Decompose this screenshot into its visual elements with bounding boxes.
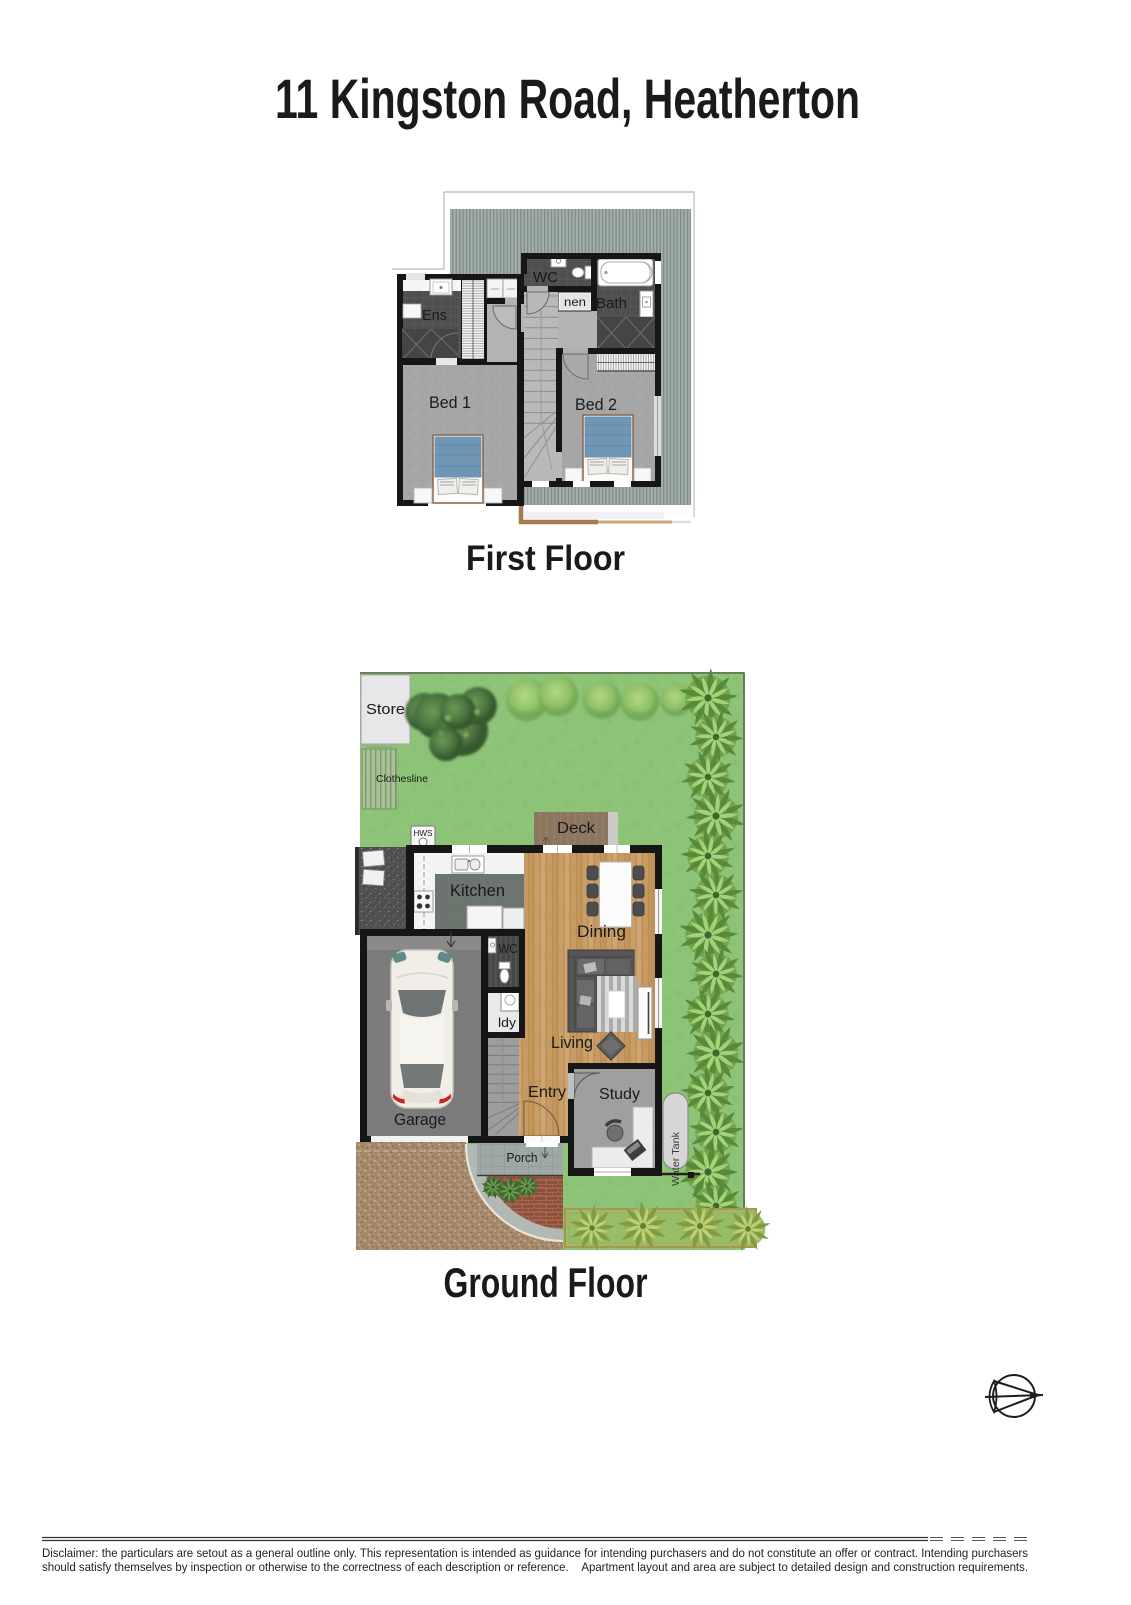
- svg-text:Bed 1: Bed 1: [429, 394, 471, 412]
- svg-text:should satisfy themselves by i: should satisfy themselves by inspection …: [42, 1560, 1028, 1574]
- svg-text:Bath: Bath: [596, 295, 627, 312]
- svg-text:Ens: Ens: [422, 307, 447, 324]
- svg-text:Living: Living: [551, 1033, 593, 1052]
- svg-text:ldy: ldy: [498, 1015, 517, 1030]
- svg-text:Clothesline: Clothesline: [376, 773, 428, 785]
- svg-text:11 Kingston Road, Heatherton: 11 Kingston Road, Heatherton: [275, 67, 860, 130]
- svg-text:Disclaimer: the particulars ar: Disclaimer: the particulars are setout a…: [42, 1546, 1028, 1560]
- svg-text:Garage: Garage: [394, 1110, 446, 1129]
- svg-text:nen: nen: [564, 297, 586, 309]
- svg-text:HWS: HWS: [414, 828, 433, 838]
- svg-text:Study: Study: [599, 1086, 640, 1103]
- svg-text:Water Tank: Water Tank: [670, 1131, 682, 1186]
- svg-text:Bed 2: Bed 2: [575, 396, 617, 414]
- svg-text:First Floor: First Floor: [466, 539, 625, 578]
- svg-text:WC: WC: [499, 941, 518, 956]
- svg-text:Ground Floor: Ground Floor: [444, 1259, 648, 1306]
- svg-text:Deck: Deck: [557, 820, 596, 837]
- svg-text:Entry: Entry: [528, 1084, 566, 1101]
- svg-text:Kitchen: Kitchen: [450, 882, 505, 900]
- svg-text:Porch: Porch: [507, 1151, 538, 1165]
- svg-text:Store: Store: [366, 701, 405, 718]
- svg-text:WC: WC: [533, 270, 558, 286]
- svg-text:Dining: Dining: [577, 922, 626, 941]
